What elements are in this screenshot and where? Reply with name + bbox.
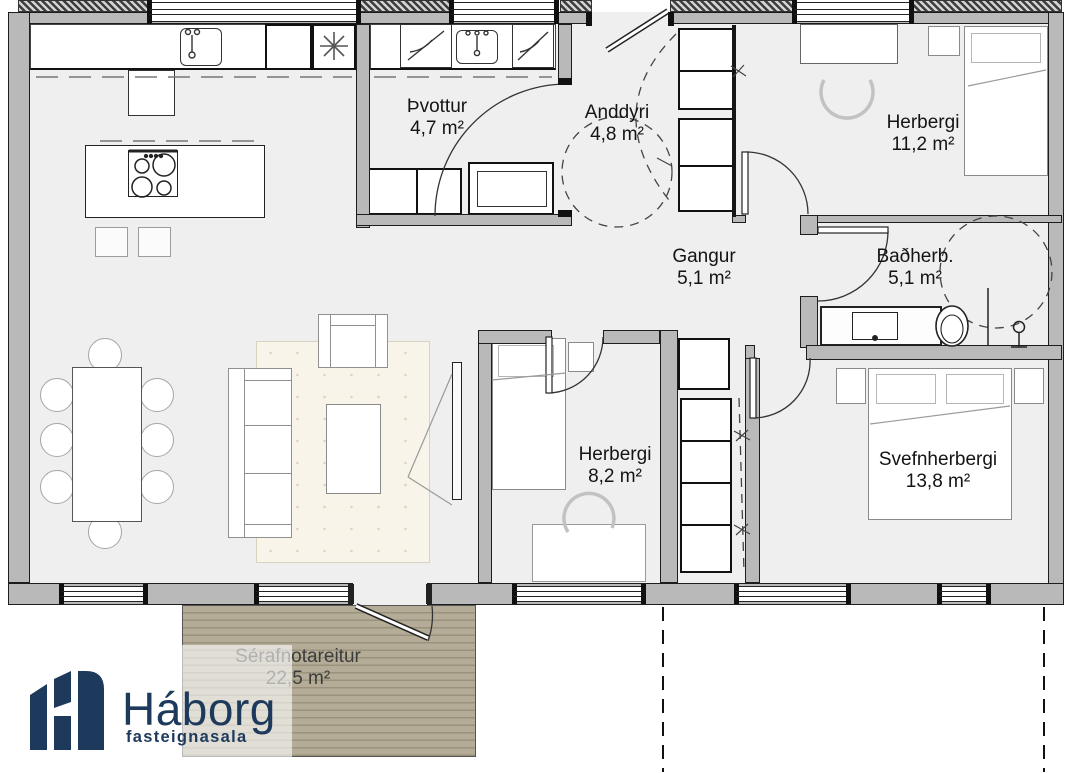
room-area: 4,7 m² bbox=[407, 118, 467, 140]
sofa-back bbox=[229, 369, 245, 537]
wall bbox=[808, 215, 1062, 223]
room-label-herbergi-2: Herbergi 8,2 m² bbox=[579, 444, 652, 488]
room-name: Herbergi bbox=[887, 112, 960, 134]
washer-icon bbox=[400, 24, 452, 68]
room-name: Herbergi bbox=[579, 444, 652, 466]
pillow bbox=[498, 345, 554, 377]
dining-chair bbox=[40, 470, 74, 504]
sofa-arm bbox=[245, 524, 291, 536]
kitchen-appliance bbox=[265, 24, 312, 70]
armchair-arm bbox=[375, 315, 387, 367]
room-area: 13,8 m² bbox=[879, 471, 997, 493]
pillow bbox=[876, 374, 936, 404]
wall bbox=[558, 24, 572, 84]
closet bbox=[678, 338, 730, 390]
window-icon bbox=[450, 2, 558, 22]
room-name: Þvottur bbox=[407, 96, 467, 118]
nightstand bbox=[836, 368, 866, 404]
wall bbox=[732, 25, 736, 217]
room-name: Gangur bbox=[672, 246, 735, 268]
room-name: Svefnherbergi bbox=[879, 449, 997, 471]
entry-closet bbox=[678, 118, 734, 212]
dining-chair bbox=[140, 378, 174, 412]
desk bbox=[532, 524, 646, 582]
deck-door-opening bbox=[353, 583, 427, 605]
window-icon bbox=[60, 586, 147, 602]
room-label-herbergi-1: Herbergi 11,2 m² bbox=[887, 112, 960, 156]
wall bbox=[1048, 12, 1064, 605]
room-area: 5,1 m² bbox=[876, 268, 953, 290]
desk bbox=[800, 24, 898, 64]
wall bbox=[806, 345, 1062, 360]
wardrobe-cell bbox=[680, 524, 732, 573]
kitchen-cabinet bbox=[128, 70, 175, 116]
sofa-cushion-divider bbox=[245, 425, 291, 426]
wall bbox=[8, 12, 30, 583]
room-area: 8,2 m² bbox=[579, 466, 652, 488]
tv bbox=[452, 362, 462, 500]
wall bbox=[356, 214, 572, 226]
washer-icon bbox=[512, 24, 554, 68]
armchair-arm bbox=[319, 315, 331, 367]
wardrobe-cell bbox=[680, 482, 732, 526]
facade-hatch bbox=[560, 0, 592, 12]
room-label-svefnherbergi: Svefnherbergi 13,8 m² bbox=[879, 449, 997, 493]
window-icon bbox=[255, 586, 353, 602]
nightstand bbox=[1014, 368, 1044, 404]
brand-name: Háborg bbox=[122, 686, 276, 732]
shelf-divider bbox=[680, 165, 732, 167]
stool bbox=[138, 227, 171, 257]
kitchen-sink bbox=[180, 28, 222, 66]
facade-hatch bbox=[913, 0, 1062, 12]
pillow bbox=[946, 374, 1004, 404]
armchair-back bbox=[331, 315, 375, 326]
facade-hatch bbox=[670, 0, 793, 12]
wall bbox=[603, 330, 660, 344]
sofa-cushion-divider bbox=[245, 473, 291, 474]
facade-hatch bbox=[18, 0, 148, 12]
room-label-badherbergi: Baðherb. 5,1 m² bbox=[876, 246, 953, 290]
floor-drain-box bbox=[312, 24, 356, 70]
window-icon bbox=[148, 2, 360, 22]
room-area: 11,2 m² bbox=[887, 134, 960, 156]
brand-logo: Háborg fasteignasala bbox=[30, 668, 104, 757]
nightstand bbox=[928, 26, 960, 56]
dining-chair bbox=[40, 423, 74, 457]
laundry-sink bbox=[456, 30, 498, 64]
stool bbox=[95, 227, 128, 257]
inner-panel bbox=[477, 171, 547, 207]
wall bbox=[800, 215, 818, 235]
wardrobe-cell bbox=[680, 440, 732, 484]
entry-closet bbox=[678, 28, 734, 110]
shelf-divider bbox=[680, 70, 732, 72]
wall bbox=[478, 330, 492, 583]
entrance-door-opening bbox=[592, 12, 670, 24]
coffee-table bbox=[326, 404, 381, 494]
laundry-cabinet bbox=[468, 162, 554, 215]
room-label-anddyri: Anddyri 4,8 m² bbox=[585, 102, 649, 146]
dining-chair bbox=[140, 423, 174, 457]
window-icon bbox=[793, 2, 913, 22]
dining-table bbox=[72, 367, 142, 522]
dining-chair bbox=[140, 470, 174, 504]
washer-dryer bbox=[368, 168, 462, 215]
sofa bbox=[228, 368, 292, 538]
dining-chair bbox=[40, 378, 74, 412]
room-area: 5,1 m² bbox=[672, 268, 735, 290]
floorplan-canvas: Þvottur 4,7 m² Anddyri 4,8 m² Herbergi 1… bbox=[0, 0, 1071, 773]
facade-hatch bbox=[360, 0, 450, 12]
room-label-thvottur: Þvottur 4,7 m² bbox=[407, 96, 467, 140]
wall bbox=[356, 24, 370, 228]
room-name: Baðherb. bbox=[876, 246, 953, 268]
armchair bbox=[318, 314, 388, 368]
room-name: Anddyri bbox=[585, 102, 649, 124]
wall bbox=[745, 358, 760, 583]
wall bbox=[660, 330, 678, 583]
wardrobe-cell bbox=[680, 398, 732, 442]
brand-tagline: fasteignasala bbox=[126, 728, 247, 747]
boundary-dashed-lines bbox=[663, 607, 1044, 772]
room-label-gangur: Gangur 5,1 m² bbox=[672, 246, 735, 290]
divider bbox=[416, 170, 418, 213]
window-icon bbox=[513, 586, 645, 602]
wall bbox=[800, 296, 818, 348]
pillow bbox=[971, 33, 1041, 63]
wall bbox=[478, 330, 552, 344]
room-area: 4,8 m² bbox=[585, 124, 649, 146]
window-icon bbox=[938, 586, 990, 602]
window-icon bbox=[735, 586, 850, 602]
nightstand bbox=[568, 342, 594, 372]
bathroom-sink bbox=[852, 312, 898, 340]
sofa-arm bbox=[245, 369, 291, 381]
stove bbox=[128, 150, 178, 197]
haborg-logo-icon bbox=[30, 668, 104, 752]
